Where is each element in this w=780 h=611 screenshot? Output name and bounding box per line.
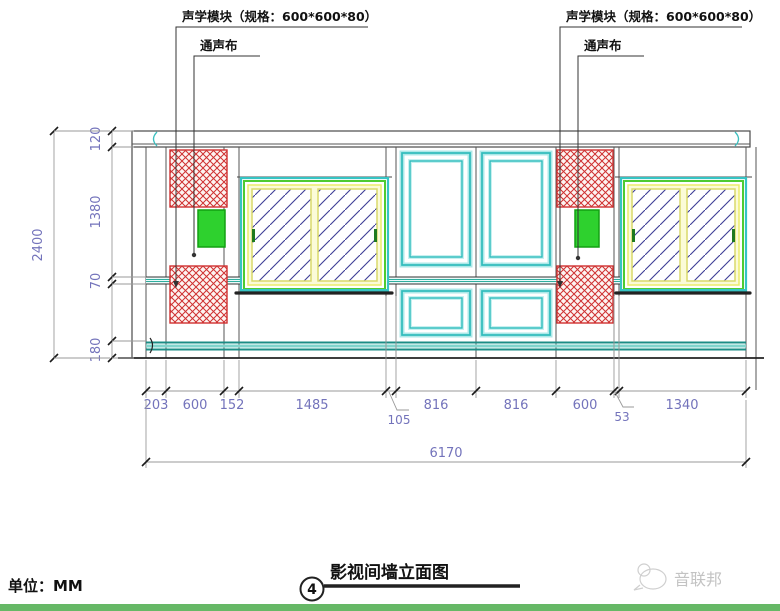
title-block: 4 影视间墙立面图 — [301, 562, 521, 601]
cad-sheet: 声学模块（规格：600*600*80） 通声布 声学模块（规格：600*600*… — [0, 0, 780, 611]
ceiling-cornice — [132, 131, 750, 147]
dim-203: 203 — [144, 398, 169, 413]
glass-pane — [632, 189, 680, 281]
dim-600a: 600 — [183, 398, 208, 413]
sound-cloth-label: 通声布 — [200, 38, 238, 53]
dim-1340: 1340 — [665, 398, 698, 413]
dim-1485: 1485 — [295, 398, 328, 413]
acoustic-module-label: 声学模块（规格：600*600*80） — [181, 9, 377, 24]
window-right — [615, 177, 752, 293]
short-panel-right — [482, 291, 550, 335]
dim-vertical-overall: 2400 — [31, 127, 110, 362]
dim-152: 152 — [220, 398, 245, 413]
dim-105: 105 — [388, 413, 411, 427]
acoustic-module-hatch-left-bottom — [170, 266, 227, 323]
glass-pane — [252, 189, 311, 281]
leader-dot — [192, 253, 196, 257]
brand-logo-icon — [640, 569, 666, 589]
tall-panel-right — [482, 153, 550, 265]
dim-6170: 6170 — [429, 446, 462, 461]
bottom-green-bar — [0, 604, 780, 611]
leader-dot — [576, 256, 580, 260]
acoustic-module-hatch-left-top — [170, 150, 227, 207]
tall-panel-left — [402, 153, 470, 265]
dim-600b: 600 — [573, 398, 598, 413]
green-panel-left — [198, 210, 225, 247]
brand-watermark: 音联邦 — [634, 564, 722, 590]
unit-label: 单位：MM — [8, 577, 83, 595]
dim-120: 120 — [89, 127, 104, 152]
green-panel-right — [575, 210, 599, 247]
dim-816b: 816 — [504, 398, 529, 413]
glass-pane — [687, 189, 735, 281]
dim-53: 53 — [614, 410, 629, 424]
acoustic-module-label: 声学模块（规格：600*600*80） — [565, 9, 761, 24]
dim-816a: 816 — [424, 398, 449, 413]
brand-name: 音联邦 — [674, 570, 722, 589]
short-panel-left — [402, 291, 470, 335]
acoustic-module-hatch-right-bottom — [557, 266, 613, 323]
dim-180: 180 — [89, 338, 104, 363]
elevation-drawing: 声学模块（规格：600*600*80） 通声布 声学模块（规格：600*600*… — [0, 0, 780, 611]
skirting-band — [146, 338, 746, 353]
acoustic-module-hatch-right-top — [557, 150, 613, 207]
window-left — [236, 177, 392, 293]
dim-vertical-chain: 120 1380 70 180 — [89, 127, 146, 363]
sound-cloth-label: 通声布 — [584, 38, 622, 53]
sheet-number: 4 — [307, 582, 317, 598]
glass-pane — [318, 189, 377, 281]
dim-1380: 1380 — [89, 195, 104, 228]
dim-70: 70 — [89, 273, 104, 290]
dim-2400: 2400 — [31, 228, 46, 261]
drawing-title: 影视间墙立面图 — [330, 562, 449, 583]
